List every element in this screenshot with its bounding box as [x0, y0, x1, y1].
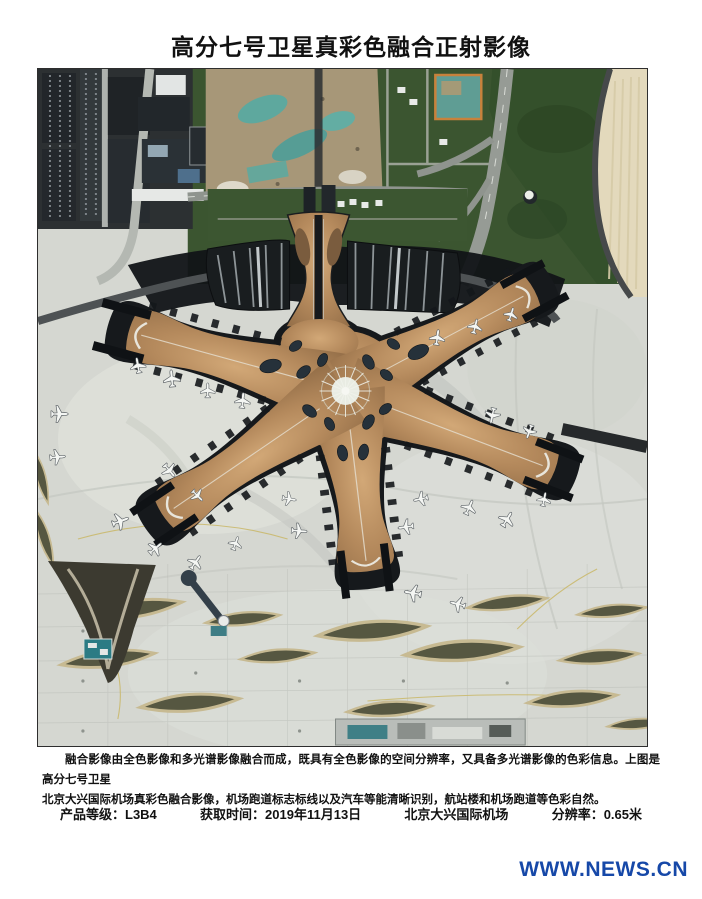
meta-acquisition-time: 获取时间：2019年11月13日 — [200, 804, 361, 823]
metadata-row: 产品等级：L3B4 获取时间：2019年11月13日 北京大兴国际机场 分辨率：… — [60, 804, 642, 823]
meta-resolution: 分辨率：0.65米 — [552, 804, 642, 823]
caption-line-1: 融合影像由全色影像和多光谱影像融合而成，既具有全色影像的空间分辨率，又具备多光谱… — [42, 750, 660, 790]
satellite-photo — [37, 68, 648, 747]
meta-location: 北京大兴国际机场 — [404, 804, 508, 823]
news-photo-page: 高分七号卫星真彩色融合正射影像 — [0, 0, 702, 899]
meta-product-level: 产品等级：L3B4 — [60, 804, 157, 823]
bottom-construction — [336, 719, 526, 745]
caption: 融合影像由全色影像和多光谱影像融合而成，既具有全色影像的空间分辨率，又具备多光谱… — [42, 750, 660, 810]
fenced-plot — [435, 75, 481, 119]
news-cn-watermark: WWW.NEWS.CN — [519, 858, 688, 882]
dome-pavilion — [525, 191, 534, 200]
satellite-image — [38, 69, 647, 746]
page-title: 高分七号卫星真彩色融合正射影像 — [0, 28, 702, 62]
